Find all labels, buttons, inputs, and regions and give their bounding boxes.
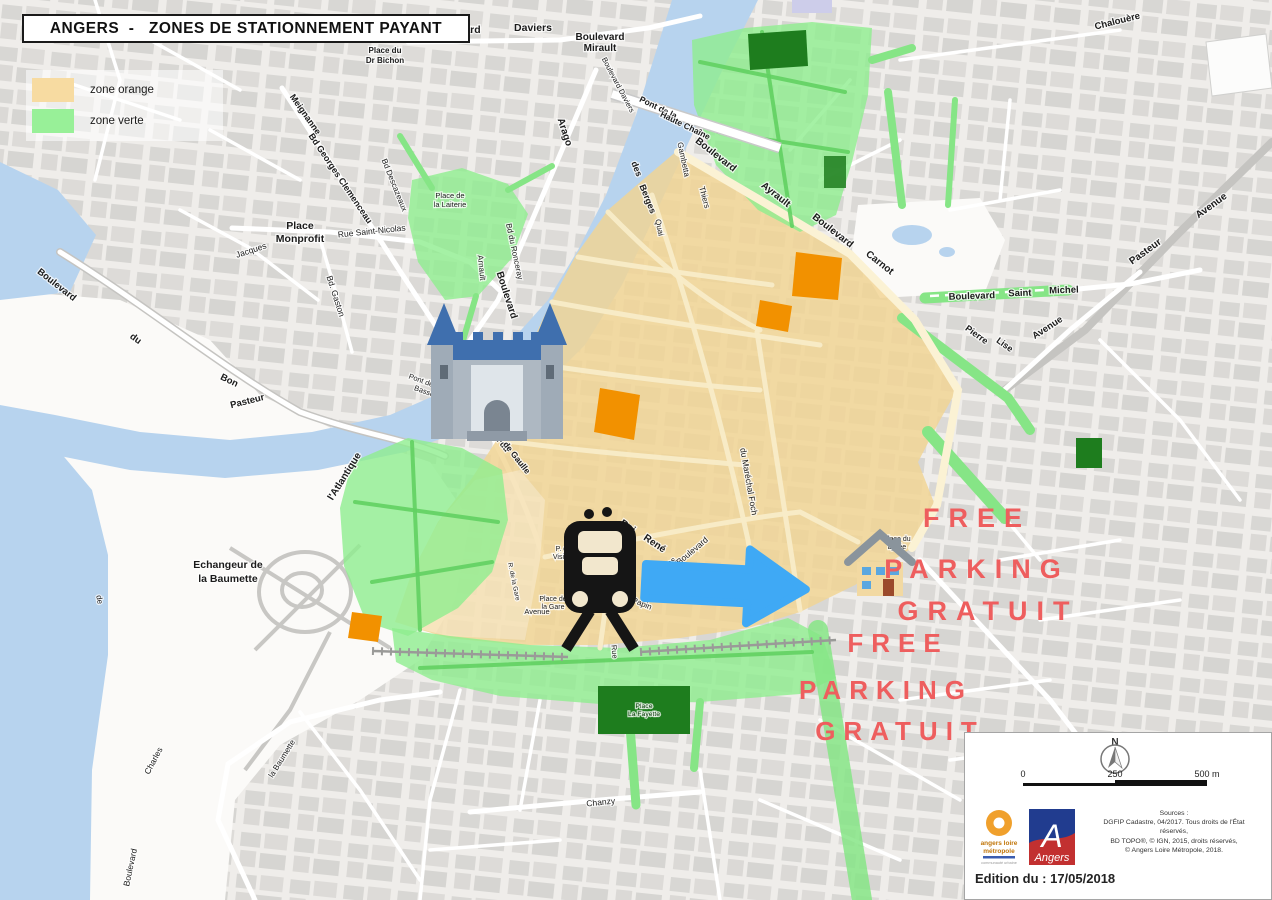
street-label: Rue: [609, 645, 619, 659]
sources-line: BD TOPO®, © IGN, 2015, droits réservés,: [1081, 837, 1267, 846]
free-parking-text: PARKING: [799, 675, 973, 705]
info-box: N 0 250 500 m angers loire métropole com…: [964, 732, 1272, 900]
legend-row-green: zone verte: [32, 109, 217, 133]
street-label: Monprofit: [276, 233, 325, 245]
street-label: Mirault: [584, 43, 617, 54]
angers-logo-initial: A: [1039, 818, 1062, 854]
street-label: Place de: [435, 191, 464, 200]
street-label: Boulevard: [576, 32, 625, 43]
alm-logo-line1: angers loire: [981, 840, 1018, 847]
free-parking-text: GRATUIT: [815, 716, 985, 746]
free-parking-text: PARKING: [884, 554, 1070, 584]
street-label: Boulevard: [949, 290, 996, 303]
street-label: Daviers: [514, 22, 552, 34]
scale-bar: 0 250 500 m: [1020, 769, 1219, 786]
angers-logo-name: Angers: [1034, 852, 1070, 864]
street-label: Place de: [539, 596, 566, 603]
sources-line: réservés,: [1081, 827, 1267, 836]
orange-zone-label: zone orange: [90, 84, 154, 96]
scale-end-label: 500 m: [1194, 769, 1219, 779]
orange-zone-swatch: [32, 78, 74, 102]
map-title: ANGERS - ZONES DE STATIONNEMENT PAYANT: [22, 14, 470, 43]
street-label: Echangeur de: [193, 559, 263, 571]
sources-line: DGFIP Cadastre, 04/2017. Tous droits de …: [1081, 818, 1267, 827]
street-label: Avenue: [524, 607, 549, 616]
angers-city-logo: A Angers: [1029, 809, 1075, 865]
street-label: la Baumette: [198, 573, 258, 585]
alm-logo-line2: métropole: [983, 848, 1015, 855]
street-label: Saint: [1008, 288, 1032, 300]
free-parking-text: GRATUIT: [898, 596, 1079, 626]
logos: angers loire métropole communauté urbain…: [977, 807, 1081, 871]
sources-line: Sources :: [1081, 809, 1267, 818]
legend: zone orange zone verte: [26, 70, 223, 141]
free-parking-text: FREE: [923, 503, 1031, 533]
street-label: Place: [286, 220, 314, 232]
street-label: la Laiterie: [434, 200, 467, 209]
edition-date: Edition du : 17/05/2018: [975, 871, 1115, 886]
angers-parking-map: BoulevardDaviersBoulevardMiraultPlace du…: [0, 0, 1272, 900]
free-parking-text: FREE: [847, 628, 948, 658]
north-arrow-icon: N: [1101, 737, 1129, 773]
street-label: Michel: [1049, 284, 1079, 296]
street-label: Dr Bichon: [366, 56, 404, 65]
legend-row-orange: zone orange: [32, 78, 217, 102]
green-zone-label: zone verte: [90, 115, 144, 127]
compass-and-scale: N 0 250 500 m: [965, 733, 1271, 805]
angers-loire-metropole-logo: angers loire métropole communauté urbain…: [981, 810, 1018, 865]
sources-line: © Angers Loire Métropole, 2018.: [1081, 846, 1267, 855]
street-label: Place du: [369, 46, 402, 55]
alm-logo-line3: communauté urbaine: [981, 861, 1017, 865]
scale-mid-label: 250: [1107, 769, 1122, 779]
sources-text: Sources : DGFIP Cadastre, 04/2017. Tous …: [1081, 809, 1267, 855]
scale-start-label: 0: [1020, 769, 1025, 779]
map-title-text: ANGERS - ZONES DE STATIONNEMENT PAYANT: [50, 20, 442, 38]
street-label: Place: [635, 703, 652, 710]
street-label: La Fayette: [628, 711, 660, 718]
green-zone-swatch: [32, 109, 74, 133]
